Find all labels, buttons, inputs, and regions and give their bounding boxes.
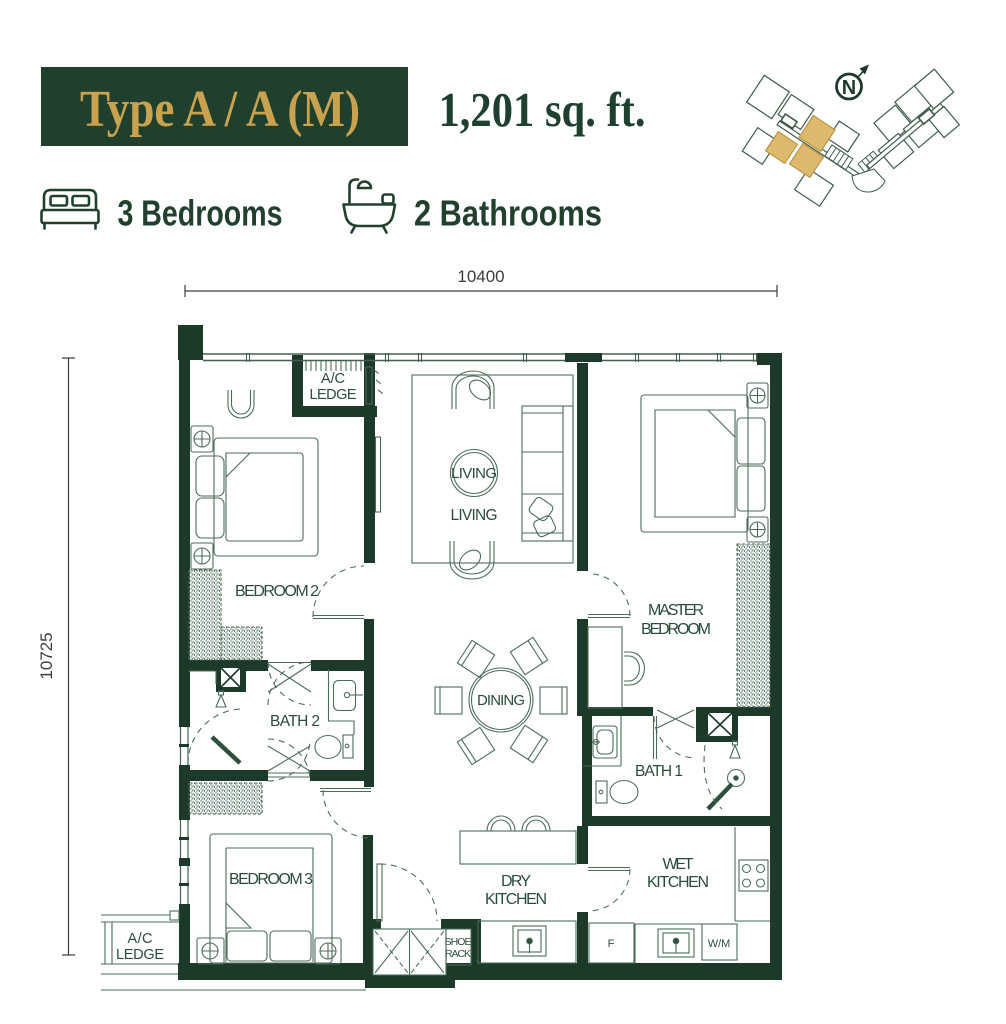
svg-text:10725: 10725 [37, 632, 56, 679]
svg-text:N: N [842, 77, 856, 99]
svg-text:Type A / A (M): Type A / A (M) [80, 81, 360, 138]
svg-text:A/C: A/C [128, 931, 153, 947]
svg-text:RACK: RACK [445, 948, 471, 960]
svg-text:BATH 1: BATH 1 [635, 763, 683, 780]
svg-text:10400: 10400 [457, 267, 504, 286]
svg-text:WET: WET [663, 856, 694, 873]
svg-text:LEDGE: LEDGE [310, 387, 357, 403]
svg-text:DINING: DINING [477, 692, 525, 709]
svg-text:LEDGE: LEDGE [116, 947, 164, 963]
svg-text:F: F [608, 938, 615, 950]
svg-text:A/C: A/C [321, 371, 345, 387]
svg-text:W/M: W/M [708, 938, 731, 950]
svg-text:3 Bedrooms: 3 Bedrooms [118, 193, 283, 234]
svg-text:2 Bathrooms: 2 Bathrooms [414, 193, 602, 234]
svg-text:LIVING: LIVING [451, 465, 497, 482]
svg-text:BEDROOM: BEDROOM [641, 621, 711, 638]
svg-text:KITCHEN: KITCHEN [647, 874, 709, 891]
svg-text:1,201 sq. ft.: 1,201 sq. ft. [439, 82, 646, 137]
svg-text:BATH 2: BATH 2 [270, 713, 320, 730]
svg-text:BEDROOM 2: BEDROOM 2 [235, 583, 319, 600]
svg-text:SHOE: SHOE [445, 936, 472, 948]
svg-text:KITCHEN: KITCHEN [485, 891, 547, 908]
svg-text:LIVING: LIVING [451, 507, 498, 524]
svg-text:BEDROOM 3: BEDROOM 3 [229, 871, 313, 888]
svg-text:MASTER: MASTER [648, 602, 704, 619]
svg-text:DRY: DRY [501, 873, 531, 890]
